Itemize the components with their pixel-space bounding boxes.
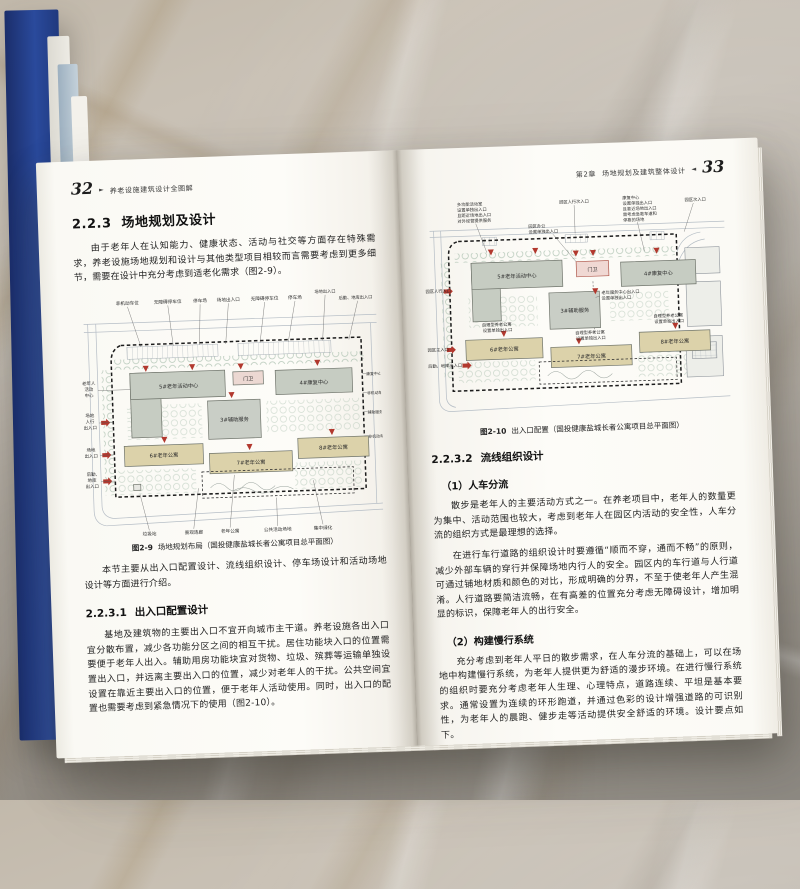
left-page-header: 32 ► 养老设施建筑设计全图解 <box>70 169 373 199</box>
svg-text:辅助服务: 辅助服务 <box>367 409 383 415</box>
item2-paragraph-1: 充分考虑到老年人平日的散步需求，在人车分流的基础上，可以在场地中构建慢行系统，为… <box>438 645 744 743</box>
svg-text:场地出入口: 场地出入口 <box>314 287 335 295</box>
open-book: 32 ► 养老设施建筑设计全图解 2.2.3场地规划及设计 由于老年人在认知能力… <box>36 138 778 759</box>
svg-text:停车场: 停车场 <box>288 293 302 300</box>
landscape-curves <box>548 370 613 380</box>
running-book-title: 养老设施建筑设计全图解 <box>110 183 194 196</box>
section-heading: 2.2.3场地规划及设计 <box>72 203 375 233</box>
annotation-ped-secondary: 园区人行次入口 <box>559 198 589 206</box>
svg-text:老年人活动中心: 老年人活动中心 <box>82 379 97 399</box>
top-labels: 非机动车位 无障碍停车位 停车场 场地出入口 无障碍停车位 停车场 场地出入口 … <box>115 286 372 309</box>
item1-paragraph-2: 在进行车行道路的组织设计时要遵循“顺而不穿，通而不畅”的原则，减少外部车辆的穿行… <box>435 540 740 623</box>
right-page: 第2章 场地规划及建筑整体设计 ◄ 33 <box>397 138 779 746</box>
svg-text:无障碍停车位: 无障碍停车位 <box>251 294 279 302</box>
entrance-paragraph: 基地及建筑物的主要出入口不宜开向城市主干道。养老设施各出入口宜分散布置，减少各功… <box>86 619 392 717</box>
photo-of-open-book: { "colors": { "cover_navy": "#23408f", "… <box>0 0 800 800</box>
page-number: 32 <box>70 179 93 199</box>
svg-text:停车场: 停车场 <box>193 297 207 304</box>
building-label: 门卫 <box>587 266 597 273</box>
entrance-plan-diagram: 5#老年活动中心 门卫 4#康复中心 3#辅助服务 6#老年公寓 7#老年公寓 … <box>422 188 733 426</box>
building-label: 门卫 <box>243 375 253 382</box>
right-page-header: 第2章 场地规划及建筑整体设计 ◄ 33 <box>421 157 724 187</box>
annotation-selfcare-left: 自理型养老公寓 设置单独出入口 <box>482 321 513 335</box>
bottom-labels: 垃圾站 景观连廊 老年公寓 公共活动场地 集中绿化 <box>142 524 332 538</box>
header-arrow-icon: ► <box>99 186 104 193</box>
svg-text:康复中心: 康复中心 <box>366 370 382 376</box>
annotation-secondary-entrance: 园区次入口 <box>684 196 705 204</box>
annotation-campus-office: 园区办公 设置单独出入口 <box>528 222 558 236</box>
svg-text:后勤,地库出入口: 后勤,地库出入口 <box>85 470 99 490</box>
annotation-rehab: 康复中心 设置单独出入口 且靠近场地出入口 需考虑急救车道和 停靠的场地 <box>622 193 658 223</box>
site-plan-diagram: 5#老年活动中心 门卫 4#康复中心 3#辅助服务 6#老年公寓 7#老年公寓 … <box>74 284 385 542</box>
svg-text:无障碍停车位: 无障碍停车位 <box>154 298 182 306</box>
figure-2-9-site-plan: 5#老年活动中心 门卫 4#康复中心 3#辅助服务 6#老年公寓 7#老年公寓 … <box>74 284 385 542</box>
subsection-heading: 2.2.3.1出入口配置设计 <box>85 596 388 622</box>
annotation-selfcare-right: 自理型养老公寓 设置单独出入口 <box>653 311 684 325</box>
intro-paragraph: 由于老年人在认知能力、健康状态、活动与社交等方面存在特殊需求，养老设施场地规划和… <box>73 232 377 286</box>
left-labels: 老年人活动中心 场地人行出入口 场地出入口 后勤,地库出入口 <box>82 379 100 489</box>
left-page: 32 ► 养老设施建筑设计全图解 2.2.3场地规划及设计 由于老年人在认知能力… <box>36 150 418 758</box>
svg-text:场地出入口: 场地出入口 <box>217 296 241 304</box>
chapter-title: 场地规划及建筑整体设计 <box>602 166 686 179</box>
entry-paving <box>482 237 496 246</box>
svg-text:非机动车位: 非机动车位 <box>368 433 386 439</box>
svg-text:非机动车位: 非机动车位 <box>116 299 140 307</box>
item1-paragraph-1: 散步是老年人的主要活动方式之一。在养老项目中，老年人的数量更为集中、活动范围也较… <box>433 490 737 544</box>
svg-text:垃圾站: 垃圾站 <box>142 530 156 537</box>
item1-heading: （1）人车分流 <box>432 468 735 494</box>
page-number: 33 <box>702 157 725 177</box>
overview-paragraph: 本节主要从出入口配置设计、流线组织设计、停车场设计和活动场地设计等方面进行介绍。 <box>84 554 388 594</box>
header-arrow-icon: ◄ <box>691 166 696 173</box>
svg-text:非机动车位: 非机动车位 <box>367 390 386 396</box>
svg-text:景观连廊: 景观连廊 <box>185 528 204 536</box>
subsection-heading: 2.2.3.2流线组织设计 <box>431 442 734 468</box>
chapter-label: 第2章 <box>576 169 597 180</box>
item2-heading: （2）构建慢行系统 <box>438 623 741 649</box>
right-labels: 康复中心 非机动车位 辅助服务 非机动车位 <box>366 370 386 438</box>
svg-text:场地人行出入口: 场地人行出入口 <box>83 412 97 432</box>
svg-text:集中绿化: 集中绿化 <box>314 524 333 532</box>
svg-text:后勤、地库出入口: 后勤、地库出入口 <box>338 293 372 301</box>
annotation-selfcare-mid: 自理型养老公寓 设置单独出入口 <box>575 328 606 342</box>
svg-text:老年公寓: 老年公寓 <box>221 527 240 535</box>
figure-2-10-site-plan: 5#老年活动中心 门卫 4#康复中心 3#辅助服务 6#老年公寓 7#老年公寓 … <box>422 188 733 426</box>
svg-text:公共活动场地: 公共活动场地 <box>264 525 292 533</box>
svg-text:场地出入口: 场地出入口 <box>84 446 98 460</box>
entry-paving <box>650 231 664 240</box>
annotation-multi-activity: 多功能活动室 设置单独出入口 且距近场地出入口 对外经营提供服务 <box>457 200 493 225</box>
